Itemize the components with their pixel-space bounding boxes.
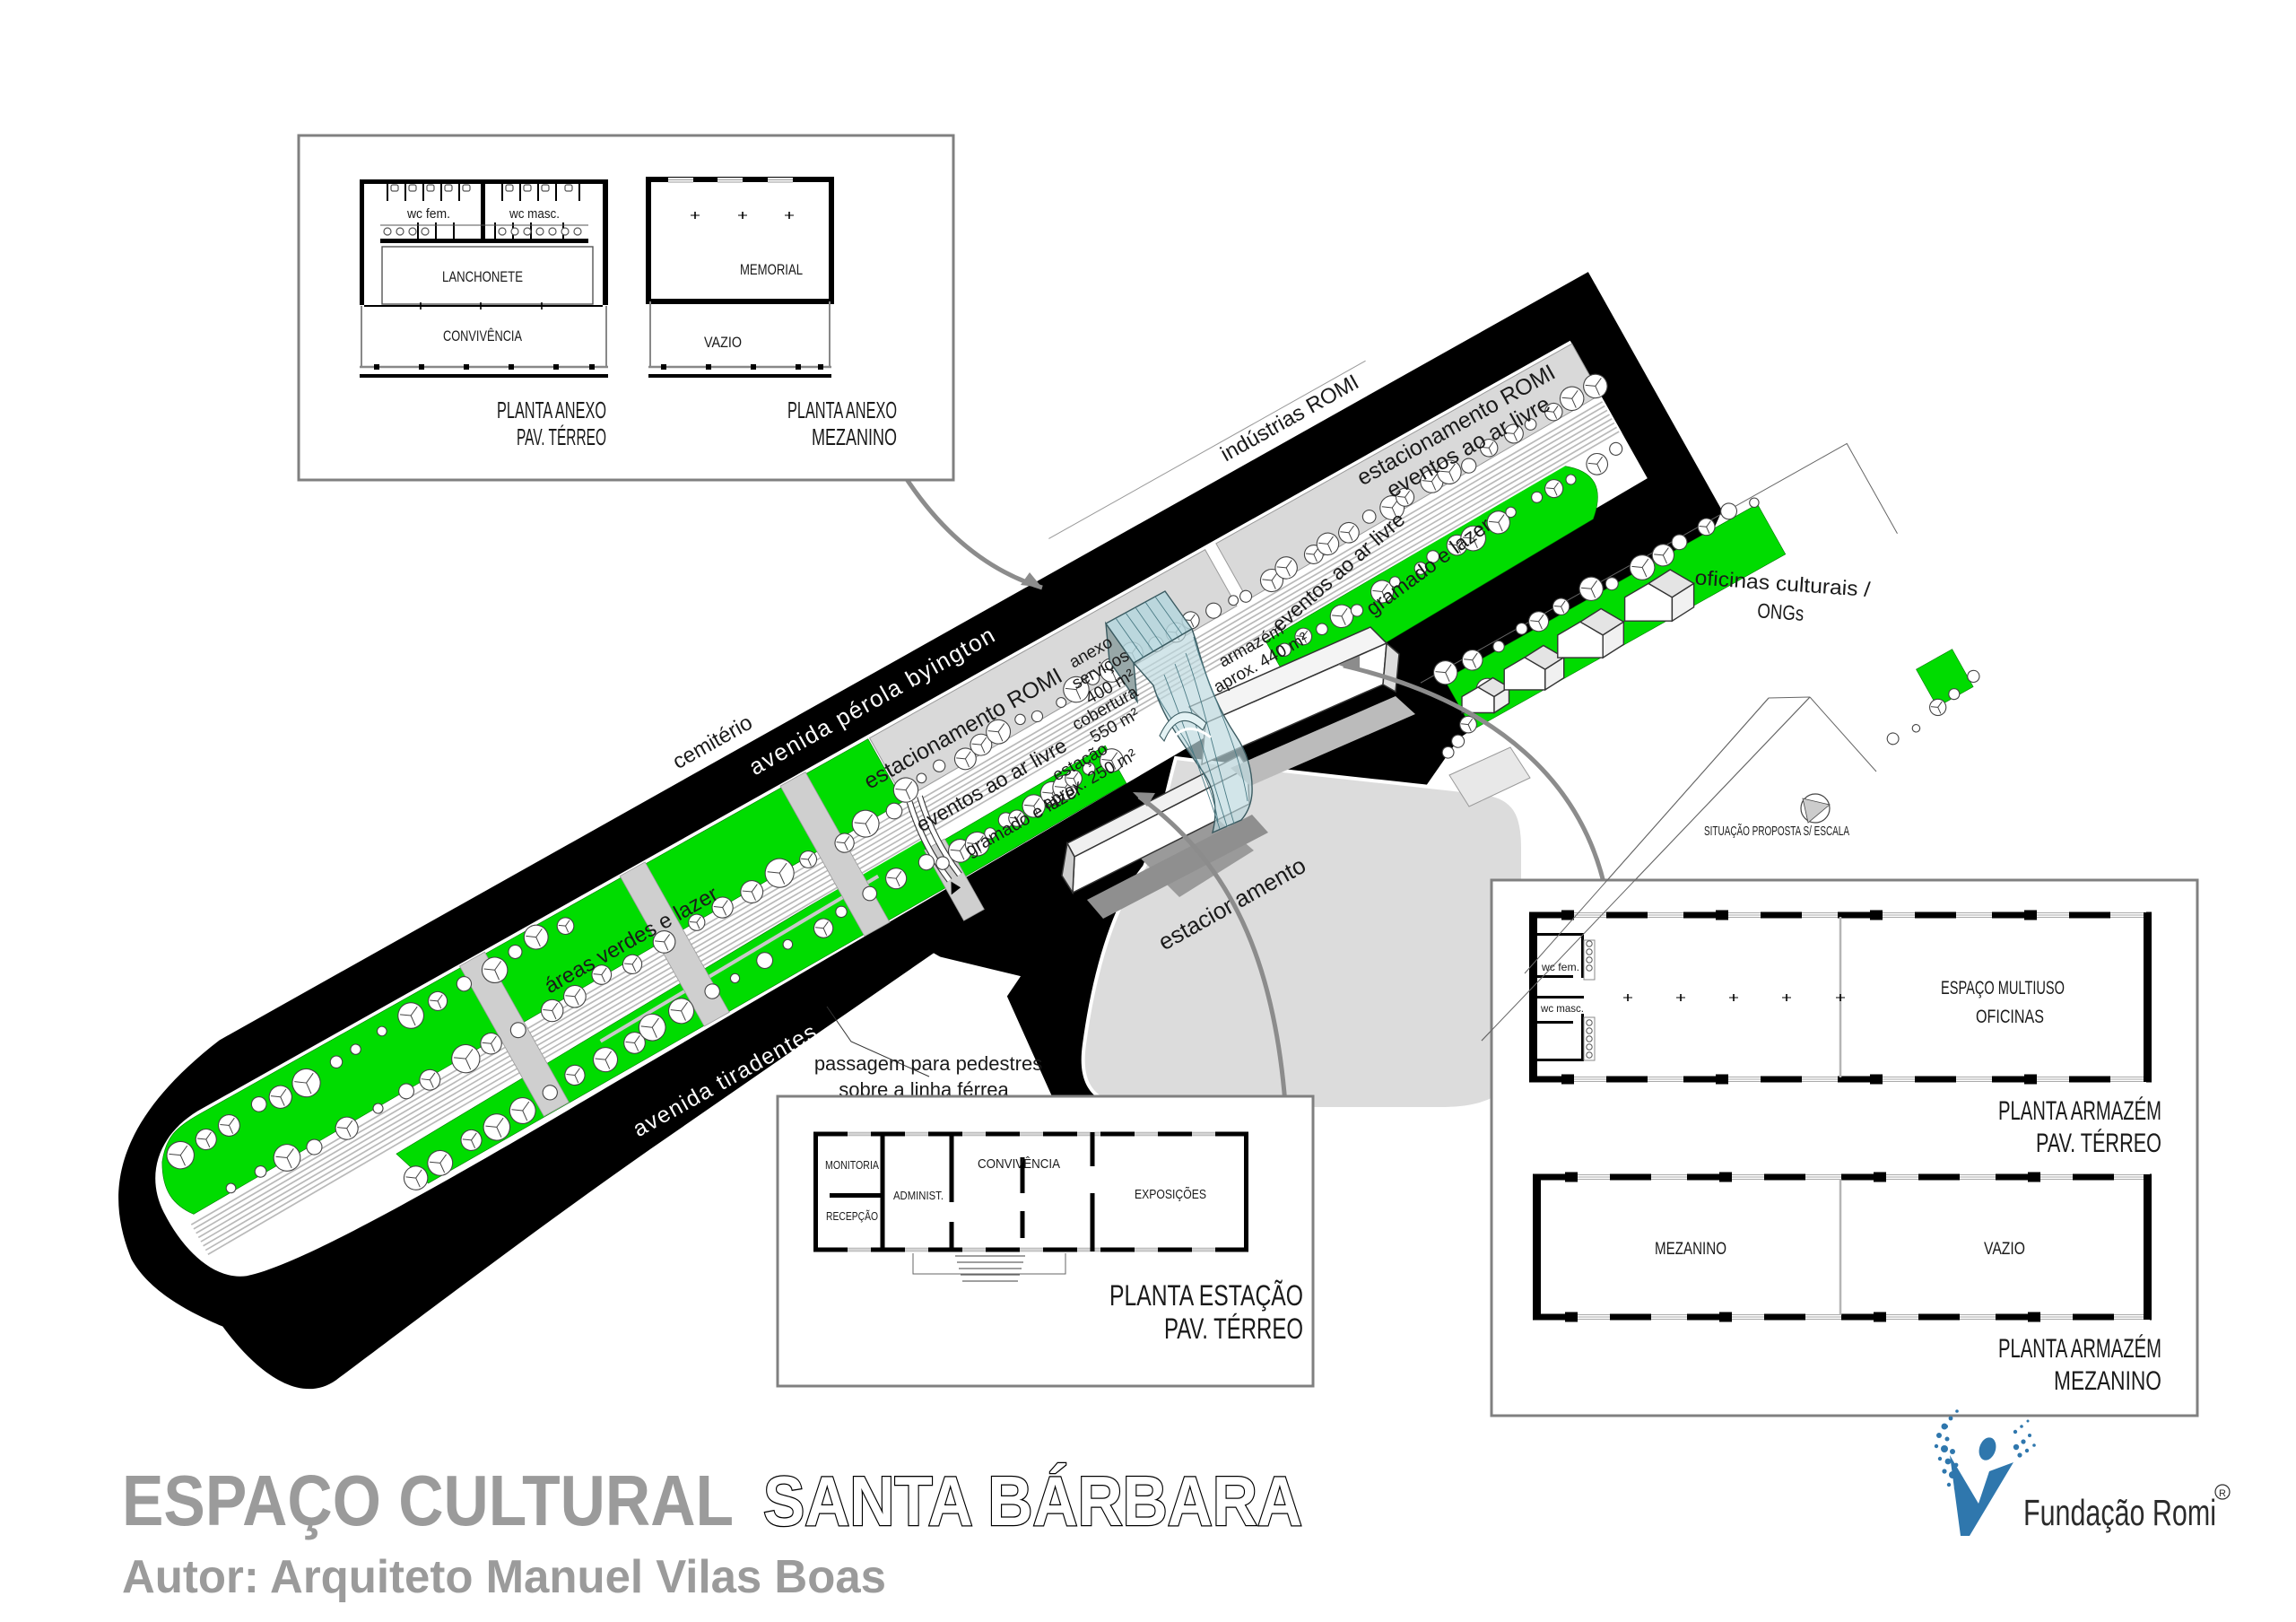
svg-text:PLANTA ESTAÇÃO: PLANTA ESTAÇÃO: [1109, 1279, 1303, 1312]
svg-text:PAV. TÉRREO: PAV. TÉRREO: [1164, 1312, 1303, 1345]
svg-text:ONGs: ONGs: [1756, 598, 1805, 625]
svg-text:wc masc.: wc masc.: [1540, 1002, 1584, 1015]
svg-text:MEMORIAL: MEMORIAL: [740, 261, 803, 278]
svg-text:MEZANINO: MEZANINO: [1655, 1240, 1726, 1259]
svg-text:LANCHONETE: LANCHONETE: [442, 268, 523, 285]
svg-text:CONVIVÊNCIA: CONVIVÊNCIA: [443, 327, 522, 344]
svg-text:RECEPÇÃO: RECEPÇÃO: [826, 1209, 878, 1223]
svg-text:EXPOSIÇÕES: EXPOSIÇÕES: [1135, 1187, 1206, 1202]
svg-text:ESPAÇO MULTIUSO: ESPAÇO MULTIUSO: [1941, 978, 2065, 998]
svg-text:PAV. TÉRREO: PAV. TÉRREO: [2036, 1129, 2161, 1158]
svg-text:CONVIVÊNCIA: CONVIVÊNCIA: [978, 1156, 1060, 1172]
svg-text:Fundação Romi: Fundação Romi: [2023, 1492, 2216, 1533]
svg-text:wc fem.: wc fem.: [1541, 961, 1579, 973]
svg-text:VAZIO: VAZIO: [1984, 1240, 2025, 1259]
svg-text:SITUAÇÃO PROPOSTA S/ ESCALA: SITUAÇÃO PROPOSTA S/ ESCALA: [1704, 824, 1849, 839]
svg-text:passagem para pedestres: passagem para pedestres: [814, 1052, 1042, 1075]
svg-text:OFICINAS: OFICINAS: [1976, 1007, 2044, 1027]
svg-text:VAZIO: VAZIO: [704, 334, 742, 351]
svg-text:PAV. TÉRREO: PAV. TÉRREO: [517, 423, 606, 450]
svg-text:PLANTA ARMAZÉM: PLANTA ARMAZÉM: [1998, 1334, 2161, 1364]
svg-text:wc fem.: wc fem.: [406, 206, 450, 222]
svg-text:SANTA BÁRBARA: SANTA BÁRBARA: [763, 1461, 1302, 1540]
svg-text:ESPAÇO CULTURAL: ESPAÇO CULTURAL: [122, 1461, 734, 1540]
svg-text:PLANTA ANEXO: PLANTA ANEXO: [497, 397, 606, 423]
svg-text:R: R: [2219, 1488, 2226, 1499]
svg-text:MEZANINO: MEZANINO: [812, 423, 897, 450]
svg-text:Autor: Arquiteto Manuel Vilas: Autor: Arquiteto Manuel Vilas Boas: [122, 1551, 886, 1603]
svg-text:ADMINIST.: ADMINIST.: [893, 1189, 944, 1202]
svg-text:PLANTA ANEXO: PLANTA ANEXO: [787, 397, 897, 423]
svg-text:MONITORIA: MONITORIA: [825, 1158, 879, 1172]
svg-text:wc masc.: wc masc.: [509, 206, 560, 222]
svg-text:MEZANINO: MEZANINO: [2054, 1366, 2161, 1396]
svg-text:PLANTA ARMAZÉM: PLANTA ARMAZÉM: [1998, 1096, 2161, 1126]
